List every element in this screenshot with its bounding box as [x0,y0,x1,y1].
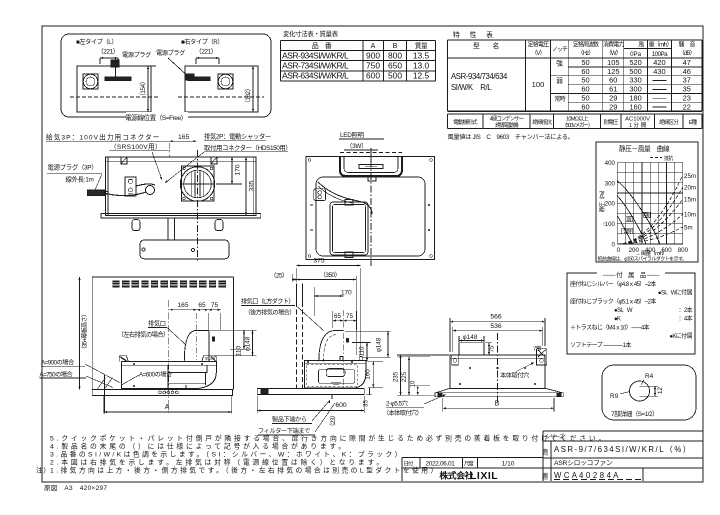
svg-text:50: 50 [581,58,589,67]
svg-text:ソフトテープ --------------1本: ソフトテープ --------------1本 [570,341,631,349]
svg-text:5.クイックポケット・パレット付側戸が隣接する場合、扉行き方: 5.クイックポケット・パレット付側戸が隣接する場合、扉行き方向に隙間が生じるため… [50,434,608,443]
svg-text:強: 強 [556,60,563,68]
svg-text:ASRシロッコファン: ASRシロッコファン [554,459,613,467]
svg-text:A: A [371,43,376,50]
svg-text:電源線位置（S=Free）: 電源線位置（S=Free） [125,113,186,122]
svg-text:φ148: φ148 [463,334,478,341]
svg-text:200: 200 [605,201,616,208]
svg-text:座付ねじシルバー（φ4.8ｘ45）--2本: 座付ねじシルバー（φ4.8ｘ45）--2本 [570,280,656,288]
svg-text:5m: 5m [684,225,693,232]
svg-text:330: 330 [629,76,641,85]
svg-text:抵抗曲線は、φ150スパイラルダクトを示す。: 抵抗曲線は、φ150スパイラルダクトを示す。 [598,255,687,262]
svg-text:─── 付 属 品 ───: ─── 付 属 品 ─── [602,270,660,279]
svg-text:800: 800 [388,51,402,61]
svg-text:耐電圧: 耐電圧 [604,118,619,126]
svg-text:E種: E種 [689,118,698,126]
svg-text:100: 100 [532,80,545,89]
svg-text:170: 170 [341,290,352,297]
svg-text:排気口: 排気口 [148,319,166,328]
svg-text:2.本図は右排気を示します。左排気は対称（電源線位置は除く）: 2.本図は右排気を示します。左排気は対称（電源線位置は除く）となります。 [50,458,386,467]
svg-text:電源プラグ: 電源プラグ [122,51,151,59]
svg-text:（500Vメガー）: （500Vメガー） [562,121,593,129]
svg-text:特 性 表: 特 性 表 [453,30,494,39]
svg-text:60: 60 [581,67,589,76]
svg-text:12: 12 [657,387,664,394]
svg-text:●SI、Wに付属: ●SI、Wに付属 [658,289,693,297]
svg-text:235: 235 [392,371,399,382]
svg-text:A=600の場合: A=600の場合 [139,371,172,379]
svg-text:静圧－風量 曲線: 静圧－風量 曲線 [619,144,670,153]
svg-text:（V）: （V） [531,50,545,57]
svg-text:（SRS100V用）: （SRS100V用） [110,143,162,151]
svg-text:170: 170 [235,164,242,175]
svg-text:800: 800 [678,247,689,254]
svg-text:37: 37 [683,76,691,85]
svg-text:（35+幕板高さ）: （35+幕板高さ） [81,312,89,353]
svg-text:566: 566 [490,314,502,321]
svg-text:ASR-9/7/634SI/W/KR/L（%）: ASR-9/7/634SI/W/KR/L（%） [554,445,692,454]
svg-text:注）: 注） [36,466,51,475]
svg-text:フィルター下端まで: フィルター下端まで [258,427,310,435]
svg-text:消費電力: 消費電力 [603,41,625,49]
svg-text:ASR-934SI/W/KR/L: ASR-934SI/W/KR/L [282,51,349,61]
svg-text:騒 音: 騒 音 [678,41,695,49]
svg-text:R4: R4 [645,373,654,380]
svg-text:15m: 15m [684,197,696,204]
svg-text:165: 165 [177,302,188,309]
svg-text:600: 600 [366,71,380,81]
svg-text:25m: 25m [684,173,696,180]
svg-text:電源プラグ（3P）: 電源プラグ（3P） [48,163,98,172]
svg-text:60: 60 [581,102,589,111]
svg-text:ASR-934/734/634: ASR-934/734/634 [451,72,508,81]
svg-text:29: 29 [609,102,617,111]
svg-text:7部詳細（S=1/2）: 7部詳細（S=1/2） [611,409,658,418]
svg-text:100Pa: 100Pa [652,51,668,58]
svg-text:65: 65 [334,313,341,320]
svg-text:R9: R9 [610,393,619,400]
svg-text:B: B [495,401,500,408]
svg-text:●SI、W: ●SI、W [614,308,633,314]
svg-text:160: 160 [364,369,371,380]
svg-text:●Kに付属: ●Kに付属 [669,332,692,340]
svg-text:＋トラスねじ（M4ｘ10）-------4本: ＋トラスねじ（M4ｘ10）-------4本 [570,324,650,332]
svg-text:ノッチ: ノッチ [552,46,568,53]
svg-text:静圧（Pa）: 静圧（Pa） [598,188,606,212]
svg-text:（W）: （W） [606,50,621,57]
svg-text:650: 650 [388,61,402,71]
svg-text:φ148: φ148 [376,337,383,352]
svg-text:125: 125 [607,67,619,76]
svg-text:335: 335 [249,180,256,191]
svg-text:60: 60 [609,76,617,85]
svg-text:（350）: （350） [320,271,341,279]
svg-text:（23）: （23） [330,412,337,429]
svg-text:110: 110 [358,346,365,356]
svg-text:75: 75 [490,345,496,352]
svg-text:弱: 弱 [556,77,563,85]
svg-text:900: 900 [366,51,380,61]
svg-text:20m: 20m [684,185,696,192]
svg-text:110: 110 [236,346,243,356]
svg-text:排気2P：電動シャッター: 排気2P：電動シャッター [204,132,271,141]
svg-text:製品下端から: 製品下端から [272,416,307,424]
svg-text:W C A 4 0 2 8 4 A: W C A 4 0 2 8 4 A [554,471,619,480]
svg-text:47: 47 [683,58,691,67]
svg-text:165: 165 [178,134,190,141]
svg-text:（221）: （221） [97,48,119,56]
svg-text:300: 300 [605,180,616,187]
svg-text:160: 160 [629,102,641,111]
svg-text:12.5: 12.5 [413,71,430,81]
svg-text:100: 100 [605,221,616,228]
svg-text:LED照明: LED照明 [340,131,364,139]
svg-text:300: 300 [629,85,641,94]
svg-text:180: 180 [629,93,641,102]
svg-text:φ148: φ148 [245,336,252,351]
svg-text:600: 600 [335,402,347,409]
svg-text:7部: 7部 [533,345,542,353]
svg-text:座付ねじブラック（φ5.1ｘ45）--2本: 座付ねじブラック（φ5.1ｘ45）--2本 [570,298,656,306]
svg-text:（154）: （154） [139,79,147,100]
svg-text:0: 0 [612,242,616,249]
svg-text:LIXIL: LIXIL [470,470,498,482]
svg-text:原図 A3 420×297: 原図 A3 420×297 [44,484,107,492]
svg-text:420: 420 [653,58,665,67]
svg-text:4.製品名の末尾の（）には仕様によって記号が入る場合がありま: 4.製品名の末尾の（）には仕様によって記号が入る場合があります。 [50,442,348,451]
svg-text:0: 0 [617,247,621,254]
svg-text:46: 46 [683,67,691,76]
svg-text:（25）: （25） [270,272,288,280]
svg-text:常時: 常時 [554,95,565,103]
svg-text:：4本: ：4本 [678,315,692,323]
svg-text:A: A [165,404,170,411]
svg-text:500: 500 [629,67,641,76]
svg-text:（dB）: （dB） [679,50,695,57]
svg-text:電源プラグ: 電源プラグ [156,49,185,57]
svg-text:1/10: 1/10 [502,461,515,468]
svg-text:本体取付穴: 本体取付穴 [500,372,529,380]
svg-text:75: 75 [346,313,353,320]
svg-text:：2本: ：2本 [678,306,692,314]
svg-text:■右タイプ（R）: ■右タイプ（R） [181,38,223,46]
svg-text:AC1000V: AC1000V [625,117,650,123]
svg-text:2-φ5.5穴: 2-φ5.5穴 [386,400,408,408]
svg-text:2022.06.01: 2022.06.01 [426,461,456,468]
svg-text:風量値は JIS C 9603 チャンバー法による。: 風量値は JIS C 9603 チャンバー法による。 [448,133,574,141]
svg-text:品 番: 品 番 [312,42,332,50]
svg-text:500: 500 [388,71,402,81]
svg-text:（3W）: （3W） [346,142,367,150]
svg-text:13.5: 13.5 [413,51,430,61]
svg-text:225: 225 [401,371,408,382]
svg-text:↑: ↑ [602,221,605,228]
svg-text:65: 65 [198,302,206,309]
svg-text:10: 10 [411,380,417,387]
svg-text:質量: 質量 [415,41,428,50]
svg-text:B: B [393,43,398,50]
svg-text:60: 60 [581,85,589,94]
svg-text:取付用コネクター（HDS150用）: 取付用コネクター（HDS150用） [204,143,291,152]
svg-text:3.品番のSI/W/Kは色調を示します。（SI：シルバー、W: 3.品番のSI/W/Kは色調を示します。（SI：シルバー、W：ホワイト、K：ブラ… [50,450,404,459]
svg-text:●K: ●K [614,317,621,323]
svg-text:375: 375 [313,258,325,265]
svg-text:（182）: （182） [244,86,252,107]
svg-text:排気口（L方ダクト）: 排気口（L方ダクト） [241,298,294,306]
svg-text:（221）: （221） [195,48,217,56]
svg-text:50: 50 [581,76,589,85]
svg-text:（左右排気の場合）: （左右排気の場合） [118,330,169,339]
svg-text:（本体取付穴）: （本体取付穴） [383,409,422,417]
svg-text:変化寸法表・質量表: 変化寸法表・質量表 [283,29,339,38]
svg-text:75: 75 [211,302,219,309]
svg-text:A=750の場合: A=750の場合 [40,370,73,378]
svg-text:520: 520 [629,58,641,67]
svg-text:400: 400 [605,160,616,167]
svg-text:0Pa: 0Pa [630,51,642,58]
svg-text:1.排気方向は上方・後方・側方排気です。（後方・左右排気の場: 1.排気方向は上方・後方・側方排気です。（後方・左右排気の場合は別売のL型ダクト… [50,466,440,475]
svg-text:29: 29 [609,93,617,102]
svg-text:105: 105 [607,58,619,67]
svg-text:ASR-634SI/W/KR/L: ASR-634SI/W/KR/L [282,71,349,81]
svg-text:定格周波数: 定格周波数 [573,41,599,49]
svg-text:23: 23 [683,93,691,102]
svg-text:風 量（m/h）: 風 量（m/h） [638,42,672,49]
svg-text:10m: 10m [684,212,696,219]
svg-text:10MΩ以上: 10MΩ以上 [566,115,589,123]
svg-text:株式会社: 株式会社 [439,470,473,481]
svg-text:（後方排気の場合）: （後方排気の場合） [245,309,295,317]
svg-text:SI/W/K R/L: SI/W/K R/L [451,83,492,92]
svg-text:22: 22 [683,102,691,111]
svg-text:型 名: 型 名 [473,41,499,50]
svg-text:ASR-734SI/W/KR/L: ASR-734SI/W/KR/L [282,61,349,71]
svg-text:1 分 間: 1 分 間 [629,121,647,129]
svg-text:■左タイプ（L）: ■左タイプ（L） [76,38,117,46]
svg-text:（Hz）: （Hz） [577,50,593,57]
svg-text:536: 536 [490,323,502,330]
svg-text:定格電圧: 定格電圧 [528,41,550,49]
svg-text:50: 50 [581,93,589,102]
svg-text:線外長:1m: 線外長:1m [66,175,94,184]
svg-text:絶縁抵抗: 絶縁抵抗 [532,118,552,126]
svg-text:750: 750 [366,61,380,71]
svg-text:抵抗: 抵抗 [664,155,673,162]
svg-text:61: 61 [609,85,617,94]
svg-text:給気3P：100V出力用コネクター: 給気3P：100V出力用コネクター [46,133,160,142]
svg-text:電動機形式: 電動機形式 [453,118,478,126]
svg-text:誘導電動機: 誘導電動機 [495,121,519,129]
svg-text:絶縁区分: 絶縁区分 [659,118,679,126]
svg-text:A=900の場合: A=900の場合 [41,359,74,367]
svg-text:35: 35 [683,85,691,94]
svg-text:430: 430 [653,67,665,76]
svg-text:13.0: 13.0 [413,61,430,71]
svg-text:4極コンデンサー: 4極コンデンサー [490,115,524,123]
svg-text:35: 35 [363,400,370,407]
